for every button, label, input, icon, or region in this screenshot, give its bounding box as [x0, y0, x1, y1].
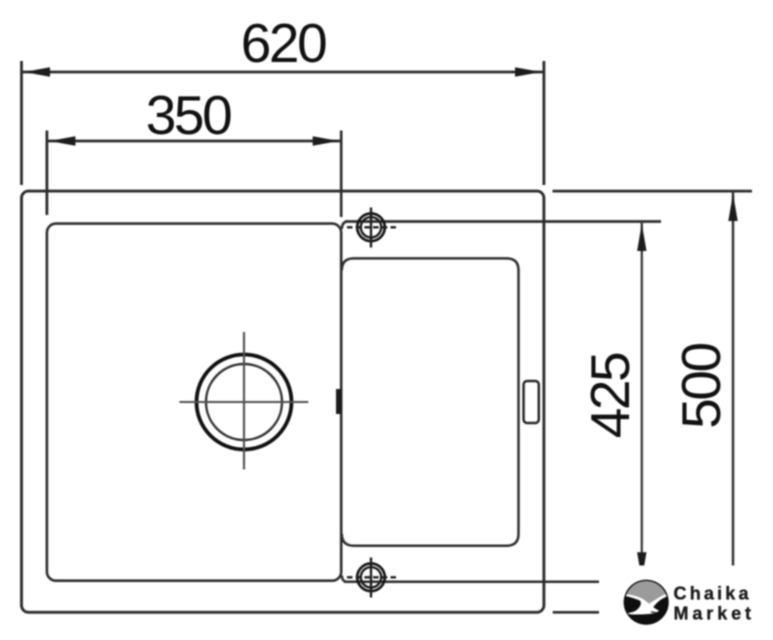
svg-text:500: 500 — [670, 343, 732, 428]
svg-text:620: 620 — [241, 12, 326, 74]
svg-text:Chaika: Chaika — [674, 583, 752, 603]
svg-text:Market: Market — [674, 603, 755, 623]
svg-text:425: 425 — [579, 353, 641, 438]
svg-text:350: 350 — [146, 84, 231, 146]
